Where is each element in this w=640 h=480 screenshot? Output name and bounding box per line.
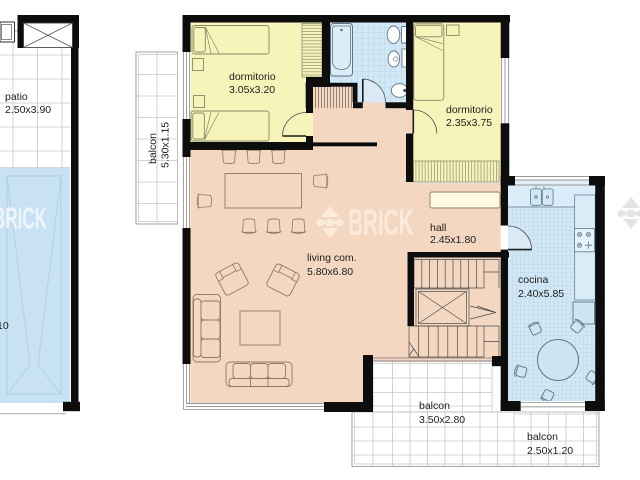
svg-text:2.50x3.90: 2.50x3.90 xyxy=(5,104,51,116)
svg-text:BRICK: BRICK xyxy=(0,201,47,236)
svg-text:patio: patio xyxy=(5,91,28,103)
svg-text:dormitorio: dormitorio xyxy=(229,71,276,83)
svg-text:10: 10 xyxy=(0,320,9,332)
svg-text:3.50x2.80: 3.50x2.80 xyxy=(419,414,465,426)
svg-text:BRICK: BRICK xyxy=(348,203,414,244)
svg-text:dormitorio: dormitorio xyxy=(446,104,493,116)
svg-text:3.05x3.20: 3.05x3.20 xyxy=(229,84,275,96)
svg-text:2.40x5.85: 2.40x5.85 xyxy=(518,288,564,300)
svg-text:2.50x1.20: 2.50x1.20 xyxy=(527,445,573,457)
svg-text:balcon: balcon xyxy=(147,133,159,164)
svg-text:living com.: living com. xyxy=(307,252,357,264)
svg-text:5.80x6.80: 5.80x6.80 xyxy=(307,266,353,278)
svg-text:hall: hall xyxy=(430,222,446,234)
svg-text:balcon: balcon xyxy=(527,431,558,443)
svg-text:5.30x1.15: 5.30x1.15 xyxy=(160,122,172,168)
svg-text:2.35x3.75: 2.35x3.75 xyxy=(446,117,492,129)
svg-text:balcon: balcon xyxy=(419,400,450,412)
svg-text:2.45x1.80: 2.45x1.80 xyxy=(430,234,476,246)
svg-text:cocina: cocina xyxy=(518,274,549,286)
